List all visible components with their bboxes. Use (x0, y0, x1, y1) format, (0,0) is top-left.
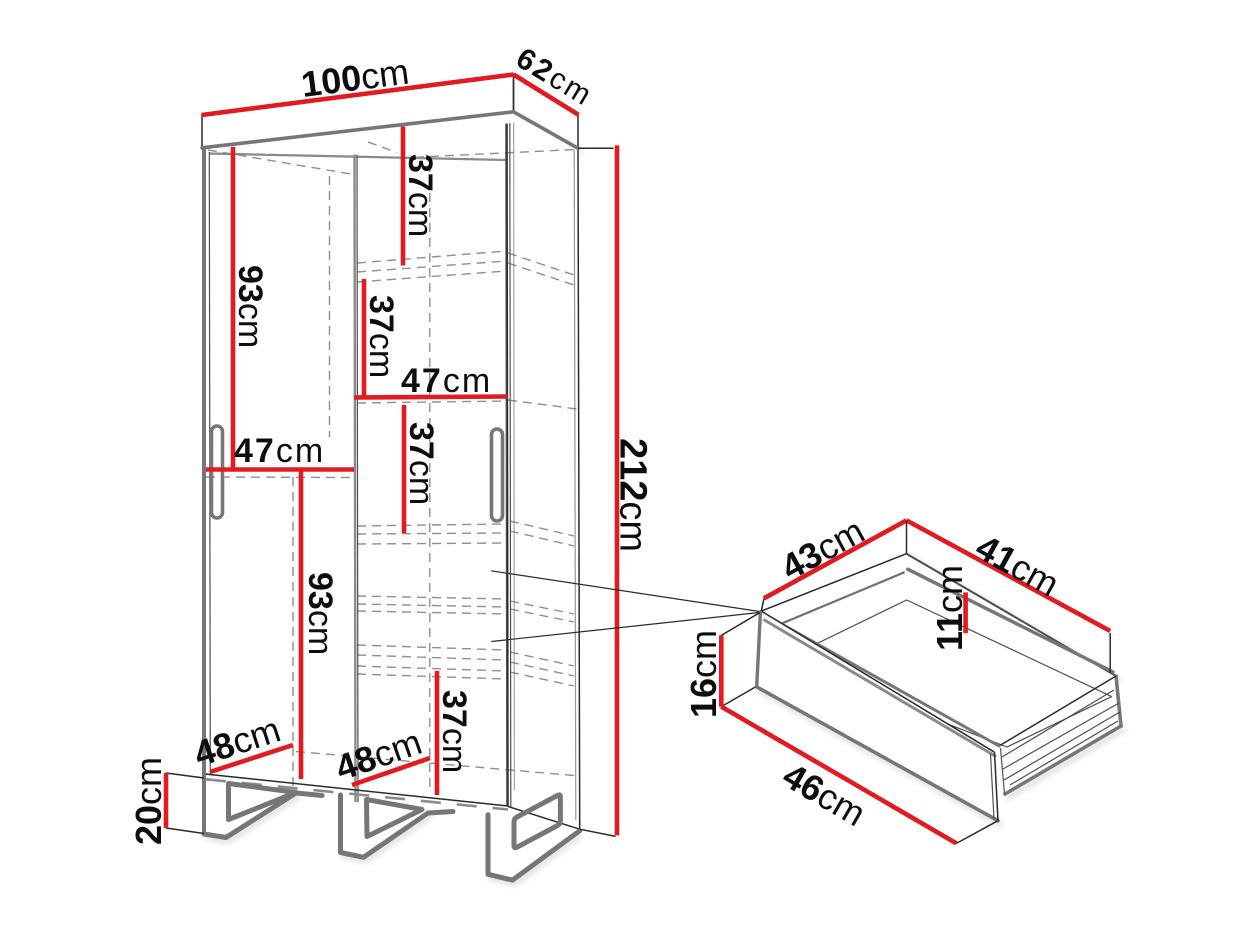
svg-text:37cm: 37cm (402, 422, 440, 505)
svg-text:16cm: 16cm (683, 630, 724, 718)
svg-text:37cm: 37cm (435, 690, 473, 773)
svg-text:47cm: 47cm (234, 432, 325, 470)
svg-text:37cm: 37cm (401, 154, 439, 237)
svg-text:93cm: 93cm (231, 265, 269, 348)
svg-text:47cm: 47cm (401, 362, 492, 400)
svg-text:212cm: 212cm (612, 438, 654, 552)
svg-text:20cm: 20cm (128, 757, 169, 845)
svg-text:37cm: 37cm (362, 295, 400, 378)
svg-text:93cm: 93cm (301, 572, 339, 655)
svg-text:11cm: 11cm (929, 565, 970, 651)
